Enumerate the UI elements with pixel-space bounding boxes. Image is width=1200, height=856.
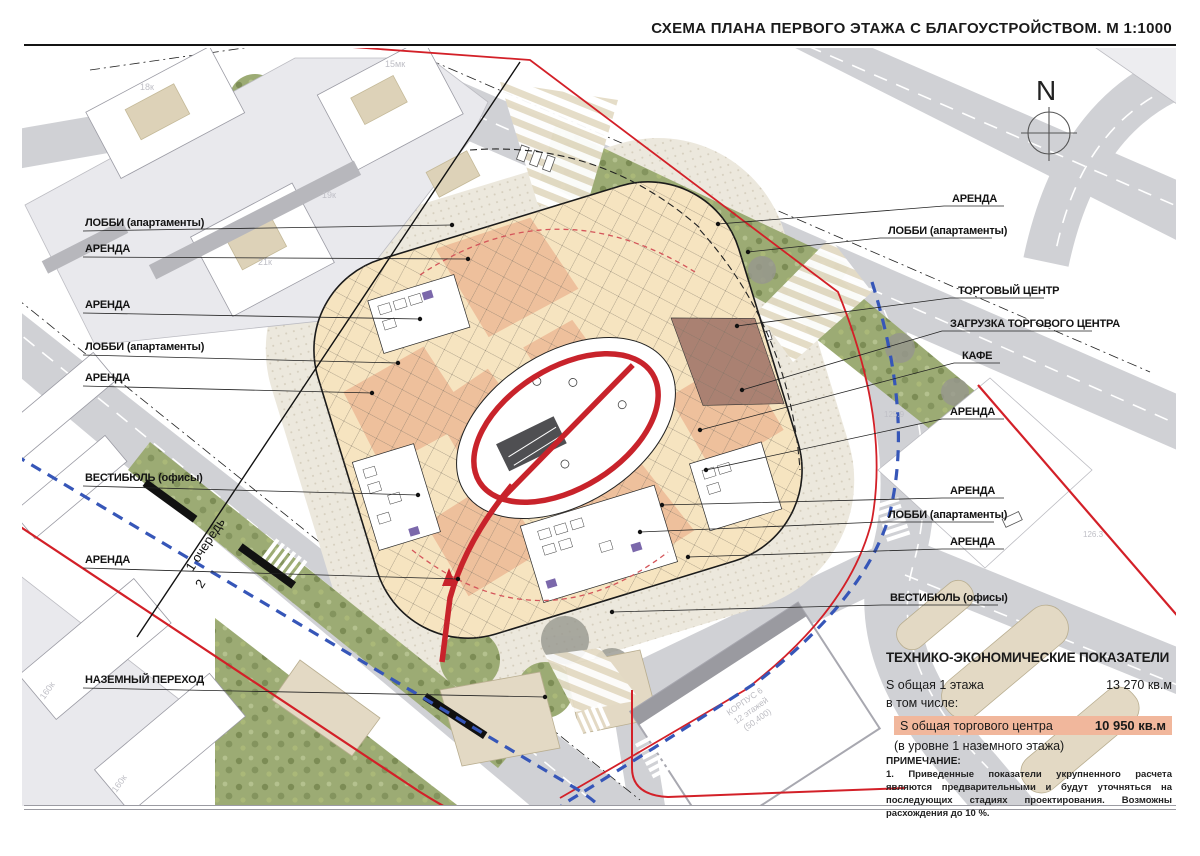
callout-label: ЛОББИ (апартаменты) [888, 225, 1008, 237]
callout-label: ТОРГОВЫЙ ЦЕНТР [958, 284, 1059, 297]
building-label-19k: 19к [322, 190, 336, 200]
phase-label-2: 2 [192, 576, 209, 590]
callout-label: НАЗЕМНЫЙ ПЕРЕХОД [85, 673, 204, 686]
callout-label: ВЕСТИБЮЛЬ (офисы) [890, 592, 1008, 604]
callout-label: АРЕНДА [85, 299, 130, 311]
elevation-126-3: 126.3 [1083, 530, 1104, 539]
building-label-18k: 18к [140, 82, 154, 92]
building-label-15mk: 15мк [385, 59, 405, 69]
callout-label: АРЕНДА [952, 193, 997, 205]
callout-label: ЛОББИ (апартаменты) [85, 341, 205, 353]
callout-label: ЛОББИ (апартаменты) [888, 509, 1008, 521]
elevation-125-9: 125.9 [884, 410, 905, 419]
callout-label: ЛОББИ (апартаменты) [85, 217, 205, 229]
callout-label: АРЕНДА [85, 372, 130, 384]
tep-highlight-label: S общая торгового центра [900, 719, 1053, 733]
tep-row-total-label: S общая 1 этажа [886, 678, 984, 692]
callout-label: АРЕНДА [950, 485, 995, 497]
building-label-21k: 21к [258, 257, 272, 267]
tep-highlight-row: S общая торгового центра 10 950 кв.м [894, 716, 1172, 735]
callout-label: АРЕНДА [950, 536, 995, 548]
callout-label: АРЕНДА [85, 554, 130, 566]
callout-label: ВЕСТИБЮЛЬ (офисы) [85, 472, 203, 484]
note-heading: ПРИМЕЧАНИЕ: [886, 756, 1172, 767]
callout-label: АРЕНДА [950, 406, 995, 418]
tep-highlight-note: (в уровне 1 наземного этажа) [894, 739, 1172, 753]
note-text: 1. Приведенные показатели укрупненного р… [886, 768, 1172, 820]
tep-block: ТЕХНИКО-ЭКОНОМИЧЕСКИЕ ПОКАЗАТЕЛИ S общая… [886, 650, 1172, 753]
drawing-sheet: 18к 15мк 19к 21к 160к 160к КОРПУС 6 12 э… [0, 0, 1200, 856]
title-rule [24, 44, 1176, 46]
callout-label: АРЕНДА [85, 243, 130, 255]
tep-row-total: S общая 1 этажа 13 270 кв.м [886, 678, 1172, 692]
north-label: N [1036, 75, 1056, 106]
tep-highlight-value: 10 950 кв.м [1095, 718, 1166, 733]
note-block: ПРИМЕЧАНИЕ: 1. Приведенные показатели ук… [886, 756, 1172, 820]
tep-heading: ТЕХНИКО-ЭКОНОМИЧЕСКИЕ ПОКАЗАТЕЛИ [886, 650, 1172, 665]
callout-label: ЗАГРУЗКА ТОРГОВОГО ЦЕНТРА [950, 318, 1120, 330]
tep-row-total-value: 13 270 кв.м [1106, 678, 1172, 692]
callout-label: КАФЕ [962, 350, 992, 362]
sheet-title: СХЕМА ПЛАНА ПЕРВОГО ЭТАЖА С БЛАГОУСТРОЙС… [651, 20, 1172, 37]
tep-subnote: в том числе: [886, 696, 1172, 710]
